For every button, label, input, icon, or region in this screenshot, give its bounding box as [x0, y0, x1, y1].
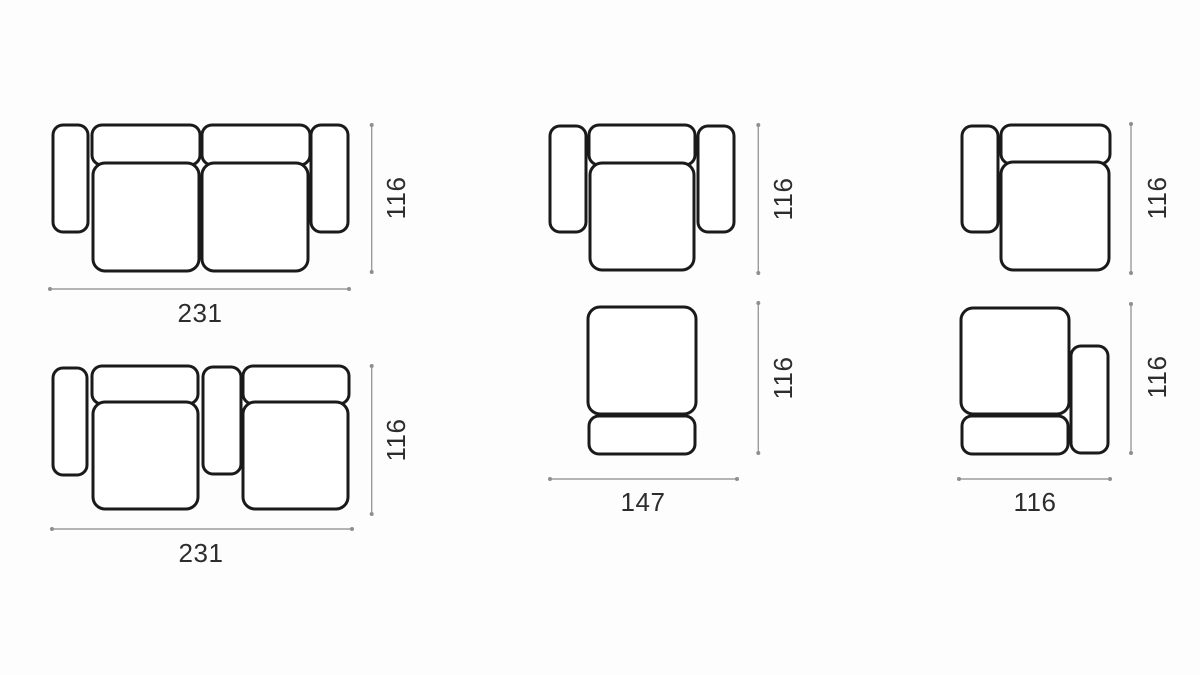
diagram-armchair-both-arms: 116	[550, 123, 798, 275]
height-dimension-label: 116	[381, 419, 411, 462]
footrest	[589, 416, 695, 454]
seat	[588, 307, 696, 414]
left-armrest	[53, 368, 87, 475]
dimension-end-dot	[756, 271, 760, 275]
dimension-end-dot	[1108, 477, 1112, 481]
backrest	[243, 366, 349, 404]
seat-cushion	[93, 402, 198, 509]
dimension-end-dot	[1129, 271, 1133, 275]
seat-cushion	[243, 402, 348, 509]
right-armrest	[1071, 346, 1108, 453]
seat-cushion	[93, 163, 199, 271]
left-armrest	[550, 126, 586, 232]
right-armrest	[698, 126, 734, 232]
width-dimension-label: 116	[1014, 487, 1057, 517]
dimension-end-dot	[48, 287, 52, 291]
backrest	[202, 125, 310, 165]
seat-cushion	[1001, 162, 1109, 270]
left-armrest	[53, 125, 88, 232]
height-dimension-label: 116	[1142, 356, 1172, 399]
dimension-end-dot	[1129, 302, 1133, 306]
diagram-module-left-arm: 116	[962, 122, 1172, 275]
dimension-end-dot	[370, 364, 374, 368]
dimension-end-dot	[1129, 451, 1133, 455]
dimension-end-dot	[735, 477, 739, 481]
diagram-two-seat-sofa-console: 116 231	[50, 364, 411, 568]
dimension-end-dot	[370, 270, 374, 274]
sofa-dimension-drawing: 116 231 116 116 116	[0, 0, 1200, 675]
seat-cushion	[202, 163, 308, 271]
backrest	[1001, 125, 1110, 164]
height-dimension-label: 116	[768, 357, 798, 400]
seat-cushion	[590, 163, 694, 270]
dimension-end-dot	[347, 287, 351, 291]
backrest	[92, 125, 200, 165]
dimension-end-dot	[350, 527, 354, 531]
footrest	[962, 416, 1068, 454]
dimension-end-dot	[756, 301, 760, 305]
dimension-end-dot	[370, 123, 374, 127]
diagram-module-right-arm-footrest: 116 116	[957, 302, 1172, 517]
backrest	[92, 366, 198, 404]
diagram-two-seat-sofa-both-arms: 116 231	[48, 123, 411, 328]
backrest	[589, 125, 695, 165]
dimension-end-dot	[957, 477, 961, 481]
height-dimension-label: 116	[1142, 177, 1172, 220]
right-armrest	[311, 125, 348, 232]
dimension-end-dot	[370, 512, 374, 516]
width-dimension-label: 231	[178, 298, 223, 328]
seat	[961, 308, 1069, 414]
height-dimension-label: 116	[768, 178, 798, 221]
diagram-canvas: 116 231 116 116 116	[0, 0, 1200, 675]
dimension-end-dot	[756, 123, 760, 127]
dimension-end-dot	[756, 451, 760, 455]
console	[203, 367, 241, 474]
dimension-end-dot	[1129, 122, 1133, 126]
width-dimension-label: 147	[621, 487, 666, 517]
left-armrest	[962, 126, 998, 232]
dimension-end-dot	[548, 477, 552, 481]
height-dimension-label: 116	[381, 177, 411, 220]
width-dimension-label: 231	[179, 538, 224, 568]
dimension-end-dot	[50, 527, 54, 531]
diagram-chaise-module-footrest: 116 147	[548, 301, 798, 517]
